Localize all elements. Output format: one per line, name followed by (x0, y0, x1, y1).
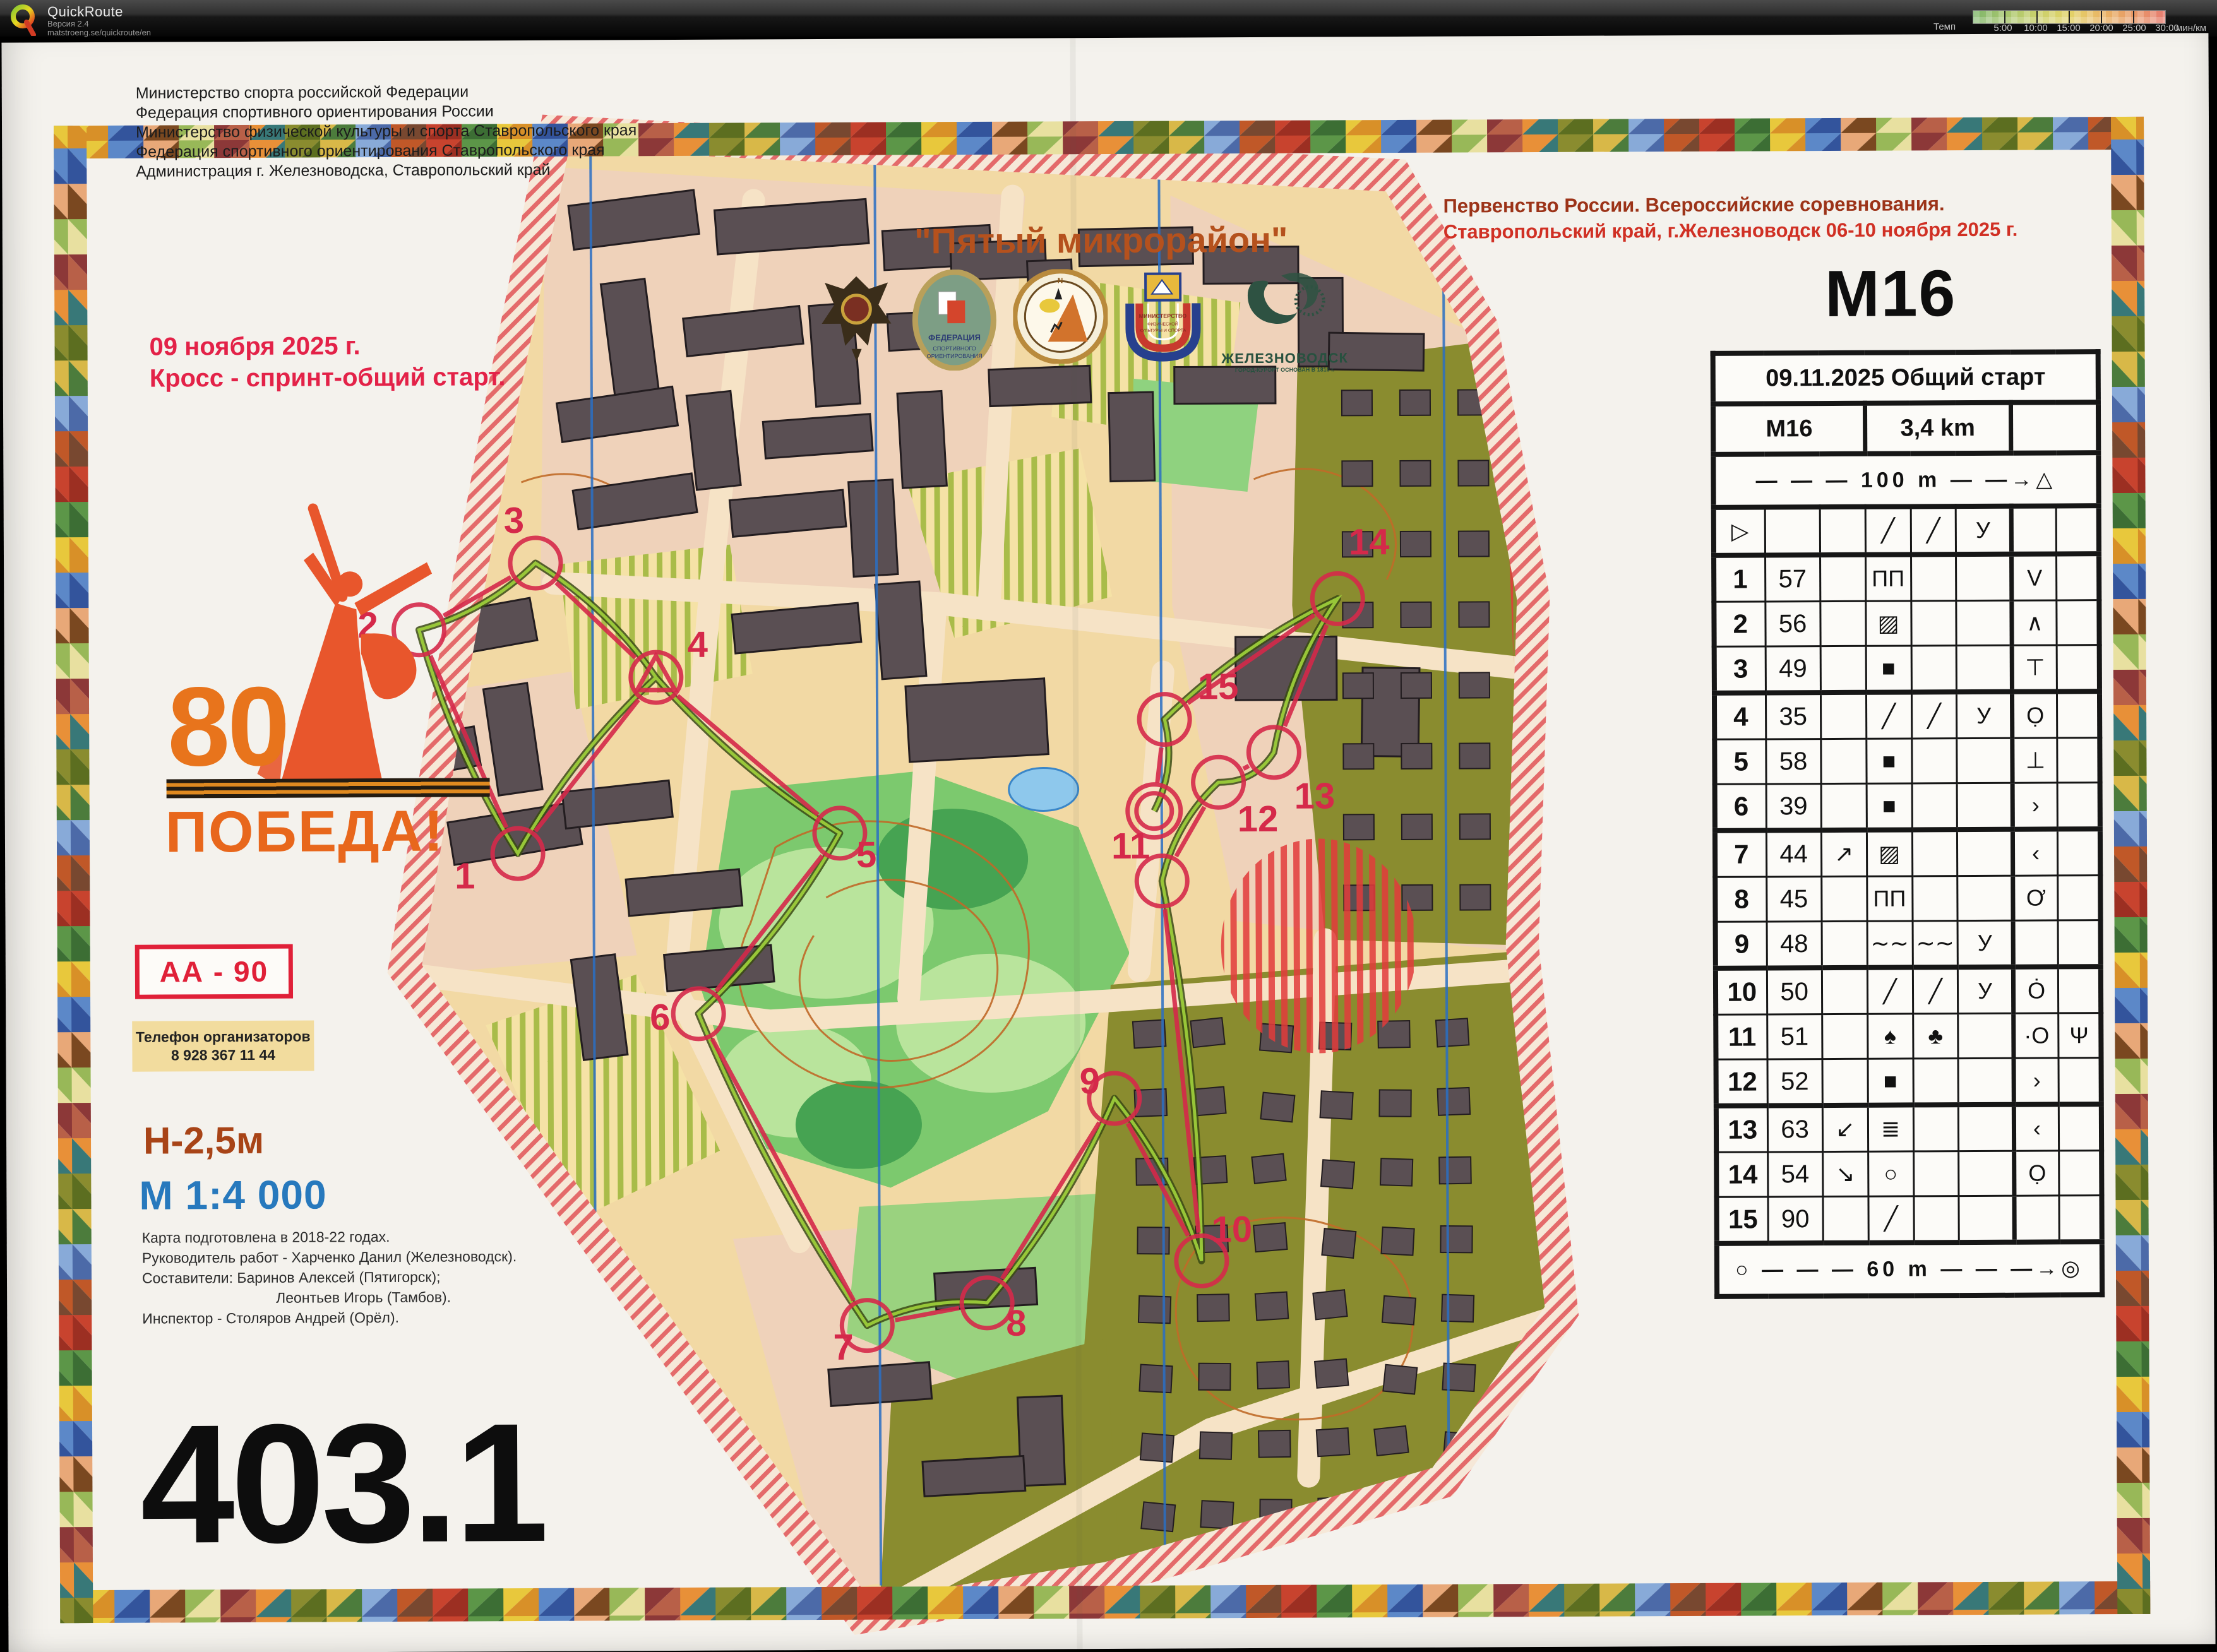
list-item: Составители: Баринов Алексей (Пятигорск)… (142, 1266, 517, 1288)
table-cell: 3,4 km (1865, 403, 2011, 454)
table-cell: Ψ (2059, 1013, 2101, 1058)
svg-text:СПОРТИВНОГО: СПОРТИВНОГО (933, 345, 976, 352)
table-cell: V (2011, 554, 2057, 600)
table-cell (1820, 646, 1866, 692)
list-item: 25:00 (2118, 23, 2151, 33)
table-cell: ⊥ (2012, 738, 2057, 783)
table-cell: ≣ (1868, 1105, 1913, 1151)
victory-number: 80 (167, 662, 288, 792)
table-cell (1956, 600, 2011, 645)
table-cell: У (1957, 920, 2012, 967)
stavropol-orienteering-federation-emblem-icon: N (1013, 269, 1108, 364)
table-cell: 52 (1767, 1059, 1822, 1106)
table-cell: 09.11.2025 Общий старт (1713, 352, 2098, 404)
st-george-ribbon (167, 778, 490, 798)
scanned-map-sheet: 123456789101112131415 Министерство спорт… (1, 33, 2215, 1652)
table-cell (1821, 876, 1867, 921)
table-cell (2014, 1196, 2060, 1242)
table-cell (1820, 739, 1866, 783)
table-cell (1957, 738, 2012, 783)
table-cell: 35 (1766, 692, 1820, 739)
table-cell (1822, 968, 1867, 1014)
organizer-phone-box: Телефон организаторов 8 928 367 11 44 (132, 1020, 314, 1071)
quickroute-logo-icon (10, 3, 38, 36)
table-cell (1957, 783, 2012, 829)
table-cell (1958, 1058, 2013, 1105)
table-cell: 11 (1716, 1014, 1767, 1059)
table-cell: ♣ (1913, 1014, 1958, 1059)
table-cell: 14 (1716, 1152, 1767, 1197)
table-cell: Ơ (2012, 876, 2058, 920)
table-cell: 51 (1767, 1014, 1822, 1059)
control-number: 5 (856, 835, 877, 876)
zheleznovodsk-caption: ЖЕЛЕЗНОВОДСК ГОРОД-КУРОРТ ОСНОВАН В 1810… (1219, 350, 1351, 373)
pace-unit-label: мин/км (2176, 23, 2206, 33)
table-cell: 1 (1714, 555, 1765, 602)
table-cell: ΠΠ (1867, 876, 1912, 921)
table-cell: 2 (1714, 602, 1765, 646)
pace-tick-labels: 5:0010:0015:0020:0025:0030:00 (1987, 23, 2184, 33)
list-item: Администрация г. Железноводска, Ставропо… (136, 158, 944, 182)
table-cell: 48 (1767, 922, 1822, 968)
out-of-bounds-area (1221, 838, 1417, 1054)
table-cell (1959, 1196, 2014, 1242)
table-cell (1913, 1105, 1959, 1151)
control-number: 4 (687, 624, 708, 665)
app-title: QuickRoute (47, 4, 123, 20)
table-cell (2013, 920, 2059, 967)
table-cell: Ọ (2012, 691, 2057, 738)
table-cell (1959, 1105, 2014, 1151)
table-cell (2057, 738, 2100, 783)
table-cell: ■ (1867, 783, 1912, 830)
table-cell: ·O (2013, 1013, 2059, 1058)
table-cell (2011, 402, 2098, 453)
table-cell: ‹ (2012, 829, 2058, 876)
event-date-block: 09 ноября 2025 г. Кросс - спринт-общий с… (149, 330, 505, 394)
table-cell (2057, 645, 2100, 692)
list-item: Инспектор - Столяров Андрей (Орёл). (142, 1307, 517, 1329)
table-cell: ΠΠ (1865, 554, 1911, 601)
table-cell: ■ (1868, 1059, 1913, 1105)
table-cell: ▨ (1867, 829, 1912, 876)
table-cell (2057, 554, 2099, 600)
phone-title: Телефон организаторов (136, 1028, 311, 1047)
table-cell: ▷ (1714, 507, 1765, 555)
zheleznovodsk-emblem-icon (1221, 268, 1329, 350)
control-number: 6 (650, 997, 671, 1038)
table-cell: 50 (1767, 968, 1822, 1014)
table-cell: 10 (1716, 968, 1767, 1014)
table-cell (1765, 507, 1820, 555)
table-cell (1822, 921, 1867, 968)
table-cell: 8 (1715, 877, 1766, 922)
table-cell (1912, 783, 1957, 830)
quickroute-window: { "app": { "name": "QuickRoute", "versio… (0, 0, 2217, 1652)
table-cell (1821, 783, 1867, 830)
control-number: 8 (1006, 1303, 1027, 1344)
table-cell: 57 (1765, 555, 1820, 602)
app-version-and-url: Версия 2.4 matstroeng.se/quickroute/en (47, 20, 151, 37)
map-credits: Карта подготовлена в 2018-22 годах.Руков… (142, 1226, 517, 1329)
table-cell (1822, 1014, 1867, 1059)
competition-line2: Ставропольский край, г.Железноводск 06-1… (1443, 216, 2151, 245)
russia-eagle-emblem-icon (812, 270, 901, 365)
control-number: 10 (1212, 1209, 1253, 1250)
table-cell: ‹ (2014, 1104, 2059, 1151)
table-cell: ╱ (1911, 692, 1957, 739)
table-cell: У (1958, 967, 2013, 1014)
table-cell: ∼∼ (1913, 921, 1958, 968)
table-cell: ╱ (1867, 967, 1913, 1014)
table-cell: У (1956, 506, 2011, 554)
table-cell (2058, 876, 2100, 920)
table-cell: У (1957, 692, 2012, 739)
table-cell (1957, 876, 2012, 920)
competition-line1: Первенство России. Всероссийские соревно… (1443, 190, 2151, 219)
table-cell (1820, 555, 1865, 602)
table-cell (2059, 920, 2101, 967)
control-number: 12 (1238, 799, 1279, 840)
table-cell (2058, 783, 2100, 829)
table-cell (1820, 692, 1866, 739)
map-title: "Пятый микрорайон" (786, 218, 1417, 262)
control-number: 11 (1111, 826, 1150, 867)
table-cell (1820, 601, 1866, 646)
table-cell: — — — 100 m — —→△ (1713, 453, 2098, 508)
table-cell (2059, 1151, 2101, 1196)
table-cell (2011, 506, 2057, 554)
table-cell: ╱ (1866, 692, 1911, 739)
victory-text: ПОБЕДА! (165, 799, 445, 866)
control-number: 13 (1294, 775, 1336, 816)
event-format: Кросс - спринт-общий старт. (150, 361, 506, 394)
table-cell (2057, 691, 2100, 738)
table-cell (1911, 646, 1957, 692)
table-cell: 39 (1766, 784, 1821, 831)
bib-number: 403.1 (140, 1385, 546, 1582)
table-cell: ╱ (1911, 506, 1956, 554)
pace-gradient-bar (1973, 10, 2166, 24)
table-cell: 58 (1766, 739, 1820, 784)
table-cell (2057, 600, 2099, 645)
table-cell: 90 (1768, 1197, 1823, 1244)
list-item: Руководитель работ - Харченко Данил (Жел… (142, 1246, 517, 1268)
table-cell: Ȯ (2013, 966, 2059, 1013)
table-cell: 49 (1766, 646, 1820, 693)
table-cell (1912, 829, 1957, 876)
table-cell: ▨ (1865, 601, 1911, 646)
table-cell (2059, 1196, 2101, 1242)
table-cell: ♠ (1867, 1014, 1913, 1059)
organizers-list: Министерство спорта российской Федерации… (136, 80, 945, 182)
table-cell: ■ (1866, 646, 1911, 692)
table-cell: Ọ (2014, 1151, 2059, 1196)
map-scale-label: М 1:4 000 (139, 1171, 326, 1218)
table-cell: ╱ (1868, 1196, 1914, 1243)
list-item: 20:00 (2085, 23, 2118, 33)
table-cell: 44 (1766, 830, 1821, 877)
svg-text:ФЕДЕРАЦИЯ: ФЕДЕРАЦИЯ (928, 333, 981, 342)
table-cell: 15 (1716, 1197, 1767, 1244)
contour-interval-label: Н-2,5м (143, 1119, 264, 1163)
table-cell (1957, 645, 2012, 692)
table-cell: 5 (1714, 739, 1766, 784)
control-number: 15 (1198, 666, 1239, 707)
table-cell (1913, 1151, 1959, 1196)
list-item: Карта подготовлена в 2018-22 годах. (142, 1226, 517, 1248)
svg-text:ОРИЕНТИРОВАНИЯ: ОРИЕНТИРОВАНИЯ (927, 353, 983, 359)
table-cell: 9 (1716, 922, 1767, 968)
table-cell: ∼∼ (1867, 921, 1913, 968)
orienteering-federation-russia-emblem-icon: ФЕДЕРАЦИЯ СПОРТИВНОГО ОРИЕНТИРОВАНИЯ (912, 270, 998, 371)
table-cell: 3 (1714, 646, 1766, 693)
table-cell: ■ (1866, 739, 1911, 783)
table-cell (2057, 506, 2099, 554)
table-cell (1958, 1013, 2013, 1058)
app-version: Версия 2.4 (47, 20, 151, 28)
table-cell: › (2012, 783, 2058, 829)
table-cell (1822, 1059, 1868, 1105)
table-cell: ↘ (1822, 1151, 1868, 1196)
control-number: 7 (833, 1327, 854, 1368)
table-cell (1912, 876, 1957, 921)
app-url: matstroeng.se/quickroute/en (47, 28, 151, 37)
list-item: 10:00 (2019, 23, 2052, 33)
table-cell (1823, 1196, 1868, 1243)
table-cell (1911, 601, 1956, 646)
table-cell (2059, 1058, 2101, 1105)
table-cell (1959, 1151, 2014, 1196)
table-cell (2058, 829, 2100, 876)
table-cell: ↙ (1822, 1105, 1868, 1152)
list-item: 5:00 (1987, 23, 2019, 33)
table-cell: ∧ (2011, 600, 2057, 645)
table-cell (1911, 739, 1957, 783)
table-cell (1820, 507, 1865, 555)
table-cell: ╱ (1865, 506, 1911, 554)
table-cell: ○ (1868, 1151, 1913, 1196)
table-cell: 13 (1716, 1105, 1767, 1152)
table-cell: 6 (1715, 784, 1766, 831)
list-item: Леонтьев Игорь (Тамбов). (142, 1287, 517, 1309)
victory-80-logo: 80 ПОБЕДА! (162, 501, 530, 876)
table-cell: ↗ (1821, 830, 1867, 877)
table-cell: ○ — — — 60 m — — —→◎ (1717, 1242, 2102, 1297)
table-cell: ⊤ (2012, 645, 2057, 692)
stavropol-sport-ministry-emblem-icon: МИНИСТЕРСТВО ФИЗИЧЕСКОЙ КУЛЬТУРЫ И СПОРТ… (1120, 268, 1206, 370)
table-cell: М16 (1713, 403, 1865, 455)
svg-text:ФИЗИЧЕСКОЙ: ФИЗИЧЕСКОЙ (1147, 321, 1178, 327)
class-label: М16 (1790, 256, 1992, 332)
pace-legend-label: Темп (1933, 21, 1956, 32)
table-cell (1913, 1196, 1959, 1243)
svg-text:КУЛЬТУРЫ И СПОРТА: КУЛЬТУРЫ И СПОРТА (1139, 328, 1186, 333)
list-item: 15:00 (2052, 23, 2085, 33)
table-cell (1956, 554, 2011, 601)
event-date: 09 ноября 2025 г. (149, 330, 505, 362)
table-cell: 45 (1766, 877, 1821, 922)
phone-number: 8 928 367 11 44 (171, 1046, 275, 1065)
table-cell: 4 (1714, 692, 1766, 739)
table-cell: 12 (1716, 1059, 1767, 1106)
table-cell: › (2014, 1058, 2059, 1105)
table-cell (2059, 966, 2101, 1013)
table-cell (2059, 1104, 2101, 1151)
table-cell: ╱ (1913, 967, 1958, 1014)
table-cell: 54 (1767, 1152, 1822, 1197)
app-titlebar: QuickRoute Версия 2.4 matstroeng.se/quic… (0, 0, 2217, 37)
aa-90-stamp: АА - 90 (135, 944, 293, 999)
table-cell: 7 (1715, 830, 1766, 877)
table-cell (1957, 829, 2012, 876)
table-cell (1911, 554, 1956, 601)
competition-block: Первенство России. Всероссийские соревно… (1443, 190, 2151, 245)
svg-text:N: N (1058, 276, 1063, 285)
table-cell: 56 (1765, 602, 1820, 646)
control-description-table: 09.11.2025 Общий стартМ163,4 km— — — 100… (1711, 349, 2105, 1299)
svg-text:МИНИСТЕРСТВО: МИНИСТЕРСТВО (1139, 312, 1187, 319)
control-number: 9 (1080, 1061, 1101, 1102)
control-number: 14 (1349, 521, 1390, 562)
table-cell: 63 (1767, 1105, 1822, 1152)
table-cell (1913, 1059, 1959, 1105)
